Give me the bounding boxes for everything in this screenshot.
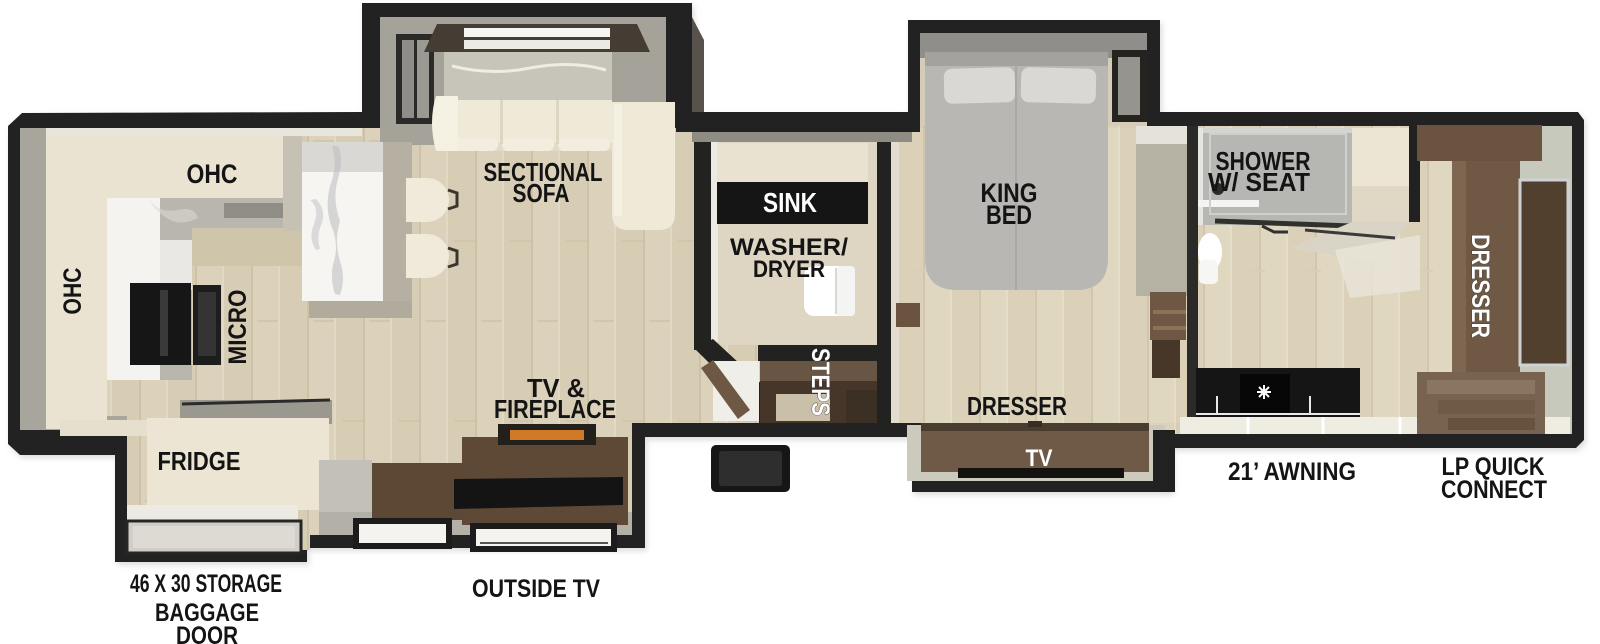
svg-text:SOFA: SOFA	[513, 178, 570, 208]
svg-text:FIREPLACE: FIREPLACE	[494, 394, 616, 424]
svg-text:CONNECT: CONNECT	[1441, 476, 1547, 504]
svg-text:BED: BED	[986, 200, 1032, 230]
svg-text:STEPS: STEPS	[806, 348, 834, 416]
svg-text:MICRO: MICRO	[224, 290, 252, 365]
svg-text:21’ AWNING: 21’ AWNING	[1228, 458, 1356, 486]
svg-text:OUTSIDE TV: OUTSIDE TV	[472, 575, 600, 603]
svg-text:DRESSER: DRESSER	[967, 391, 1067, 421]
svg-text:TV: TV	[1026, 445, 1053, 472]
svg-text:DRESSER: DRESSER	[1466, 234, 1494, 338]
svg-text:SINK: SINK	[763, 187, 817, 218]
svg-text:W/ SEAT: W/ SEAT	[1208, 167, 1310, 197]
svg-text:DRYER: DRYER	[753, 256, 825, 283]
svg-text:OHC: OHC	[187, 159, 238, 189]
svg-text:DOOR: DOOR	[176, 622, 238, 644]
svg-text:46 X 30 STORAGE: 46 X 30 STORAGE	[130, 570, 282, 598]
svg-text:OHC: OHC	[59, 268, 87, 315]
svg-text:FRIDGE: FRIDGE	[158, 446, 241, 476]
